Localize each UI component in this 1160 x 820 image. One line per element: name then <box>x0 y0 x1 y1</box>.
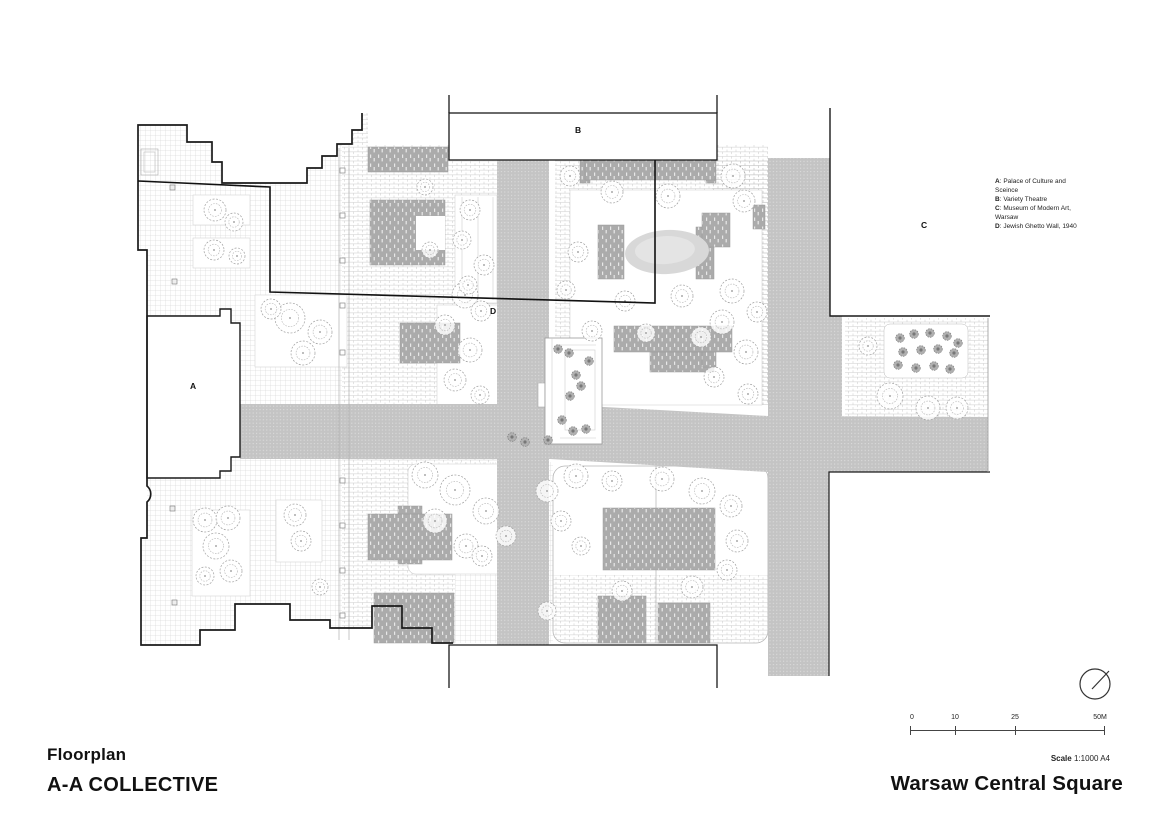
section-line-top <box>449 95 717 113</box>
scale-note-label: Scale <box>1051 754 1072 763</box>
building-a <box>147 309 240 478</box>
marker-d: D <box>490 306 496 316</box>
drawing-type-title: Floorplan <box>47 745 218 765</box>
legend-desc: : Palace of Culture and Sceince <box>995 178 1066 194</box>
road-central-vertical <box>497 160 549 676</box>
legend-desc: : Jewish Ghetto Wall, 1940 <box>1000 223 1077 230</box>
scale-tick <box>1015 726 1016 735</box>
drawing-sheet: A B C D A: Palace of Culture and Sceince… <box>0 0 1160 820</box>
block-bottom-right <box>829 472 990 676</box>
title-block: Floorplan A-A COLLECTIVE <box>47 745 218 797</box>
author-title: A-A COLLECTIVE <box>47 774 218 797</box>
marker-a: A <box>190 381 196 391</box>
scale-tick-label: 50M <box>1093 714 1107 721</box>
floorplan-drawing: A B C D <box>0 0 1160 820</box>
scale-tick <box>1104 726 1105 735</box>
scale-tick-label: 0 <box>910 714 914 721</box>
scale-tick-label: 25 <box>1011 714 1019 721</box>
building-b <box>449 113 717 160</box>
marker-c: C <box>921 220 927 230</box>
building-c <box>830 108 990 316</box>
marker-b: B <box>575 125 581 135</box>
scale-tick-label: 10 <box>951 714 959 721</box>
scale-tick <box>910 726 911 735</box>
north-arrow-icon <box>1080 669 1110 699</box>
scale-note: Scale 1:1000 A4 <box>1051 754 1110 763</box>
legend-item: C: Museum of Modern Art, Warsaw <box>995 204 1087 222</box>
scale-note-value: 1:1000 A4 <box>1074 754 1110 763</box>
scale-bar: 0 10 25 50M <box>910 716 1105 738</box>
legend-desc: : Variety Theatre <box>1000 196 1047 203</box>
scale-bar-line <box>910 730 1105 731</box>
project-title: Warsaw Central Square <box>891 772 1123 796</box>
legend: A: Palace of Culture and Sceince B: Vari… <box>995 177 1087 232</box>
legend-desc: : Museum of Modern Art, Warsaw <box>995 205 1071 221</box>
legend-item: A: Palace of Culture and Sceince <box>995 177 1087 195</box>
legend-item: B: Variety Theatre <box>995 195 1087 204</box>
legend-item: D: Jewish Ghetto Wall, 1940 <box>995 222 1087 231</box>
scale-tick <box>955 726 956 735</box>
building-bottom <box>449 645 717 688</box>
